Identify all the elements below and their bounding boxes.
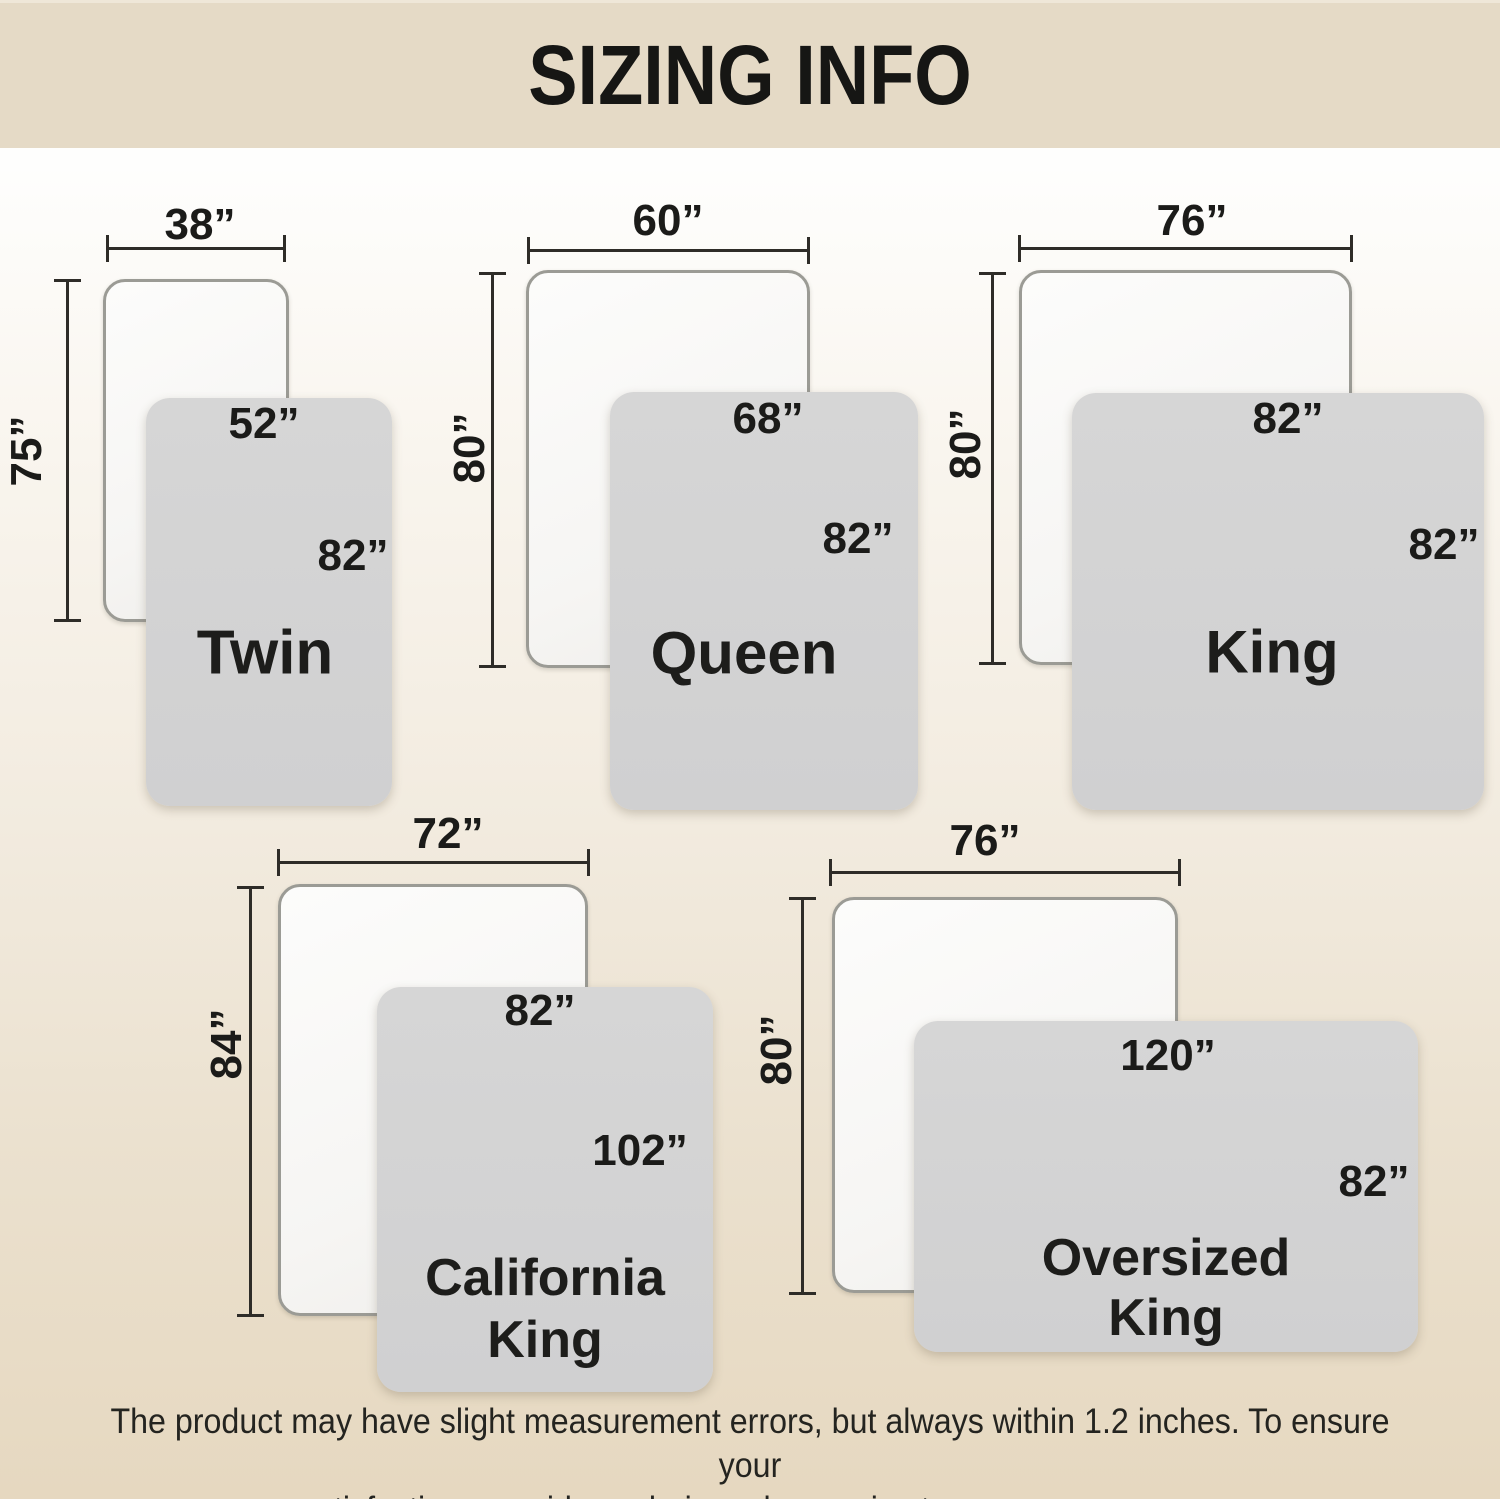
blanket [146, 398, 392, 806]
bed-width-label: 72” [413, 809, 484, 859]
bed-height-label: 80” [445, 413, 495, 484]
bed-height-label: 80” [752, 1015, 802, 1086]
title-banner: SIZING INFO [0, 0, 1500, 148]
bed-width-label: 76” [950, 816, 1021, 866]
width-measure-line [277, 861, 590, 864]
height-measure-line [66, 279, 69, 622]
blanket-width-label: 82” [1253, 394, 1324, 444]
size-name-label: Queen [651, 619, 838, 688]
disclaimer-text: The product may have slight measurement … [78, 1400, 1421, 1499]
size-name-label: California King [425, 1247, 665, 1371]
bed-width-label: 38” [165, 200, 236, 250]
page-title: SIZING INFO [528, 27, 972, 124]
width-measure-line [106, 247, 286, 250]
width-measure-line [1018, 247, 1353, 250]
blanket-length-label: 82” [823, 514, 894, 564]
bed-height-label: 80” [941, 409, 991, 480]
height-measure-line [249, 886, 252, 1317]
blanket-width-label: 68” [733, 394, 804, 444]
blanket [610, 392, 918, 810]
blanket-width-label: 120” [1120, 1031, 1215, 1081]
size-name-label: Oversized King [1042, 1228, 1291, 1348]
bed-width-label: 60” [633, 196, 704, 246]
height-measure-line [801, 897, 804, 1295]
bed-height-label: 84” [202, 1009, 252, 1080]
blanket-width-label: 52” [229, 399, 300, 449]
size-name-label: Twin [197, 618, 334, 689]
width-measure-line [829, 871, 1181, 874]
blanket-width-label: 82” [505, 986, 576, 1036]
sizing-infographic: SIZING INFO 38” 75” 52” 82” Twin 60” 80” [0, 0, 1500, 1499]
bed-height-label: 75” [2, 416, 52, 487]
size-name-label: King [1205, 618, 1338, 687]
bed-width-label: 76” [1157, 196, 1228, 246]
blanket-length-label: 82” [1409, 520, 1480, 570]
blanket-length-label: 82” [318, 531, 389, 581]
height-measure-line [991, 272, 994, 665]
blanket-length-label: 82” [1339, 1157, 1410, 1207]
width-measure-line [527, 249, 810, 252]
height-measure-line [491, 272, 494, 668]
blanket-length-label: 102” [592, 1126, 687, 1176]
blanket [1072, 393, 1484, 810]
